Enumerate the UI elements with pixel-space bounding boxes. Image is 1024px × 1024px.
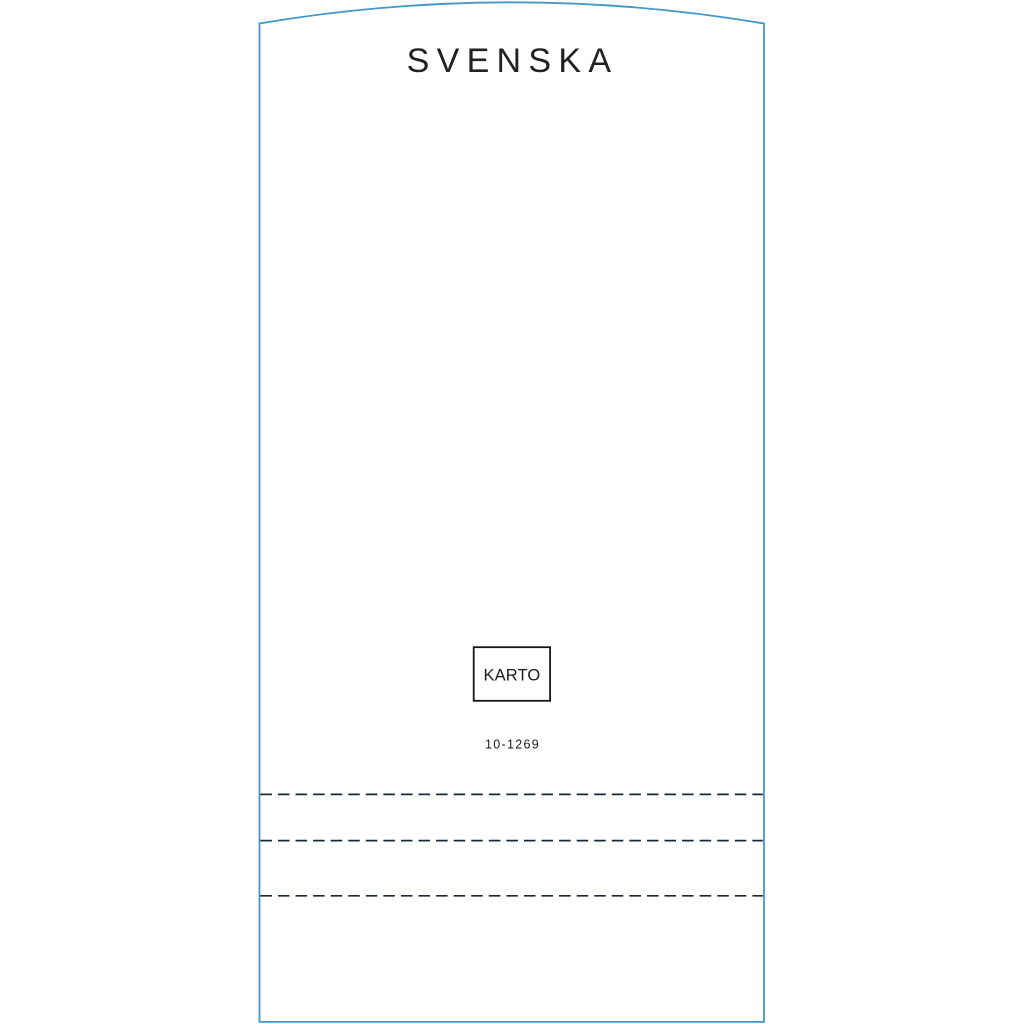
svg-text:KARTO: KARTO [484,667,541,685]
svg-text:SVENSKA: SVENSKA [407,42,619,80]
svg-text:10-1269: 10-1269 [485,738,540,752]
